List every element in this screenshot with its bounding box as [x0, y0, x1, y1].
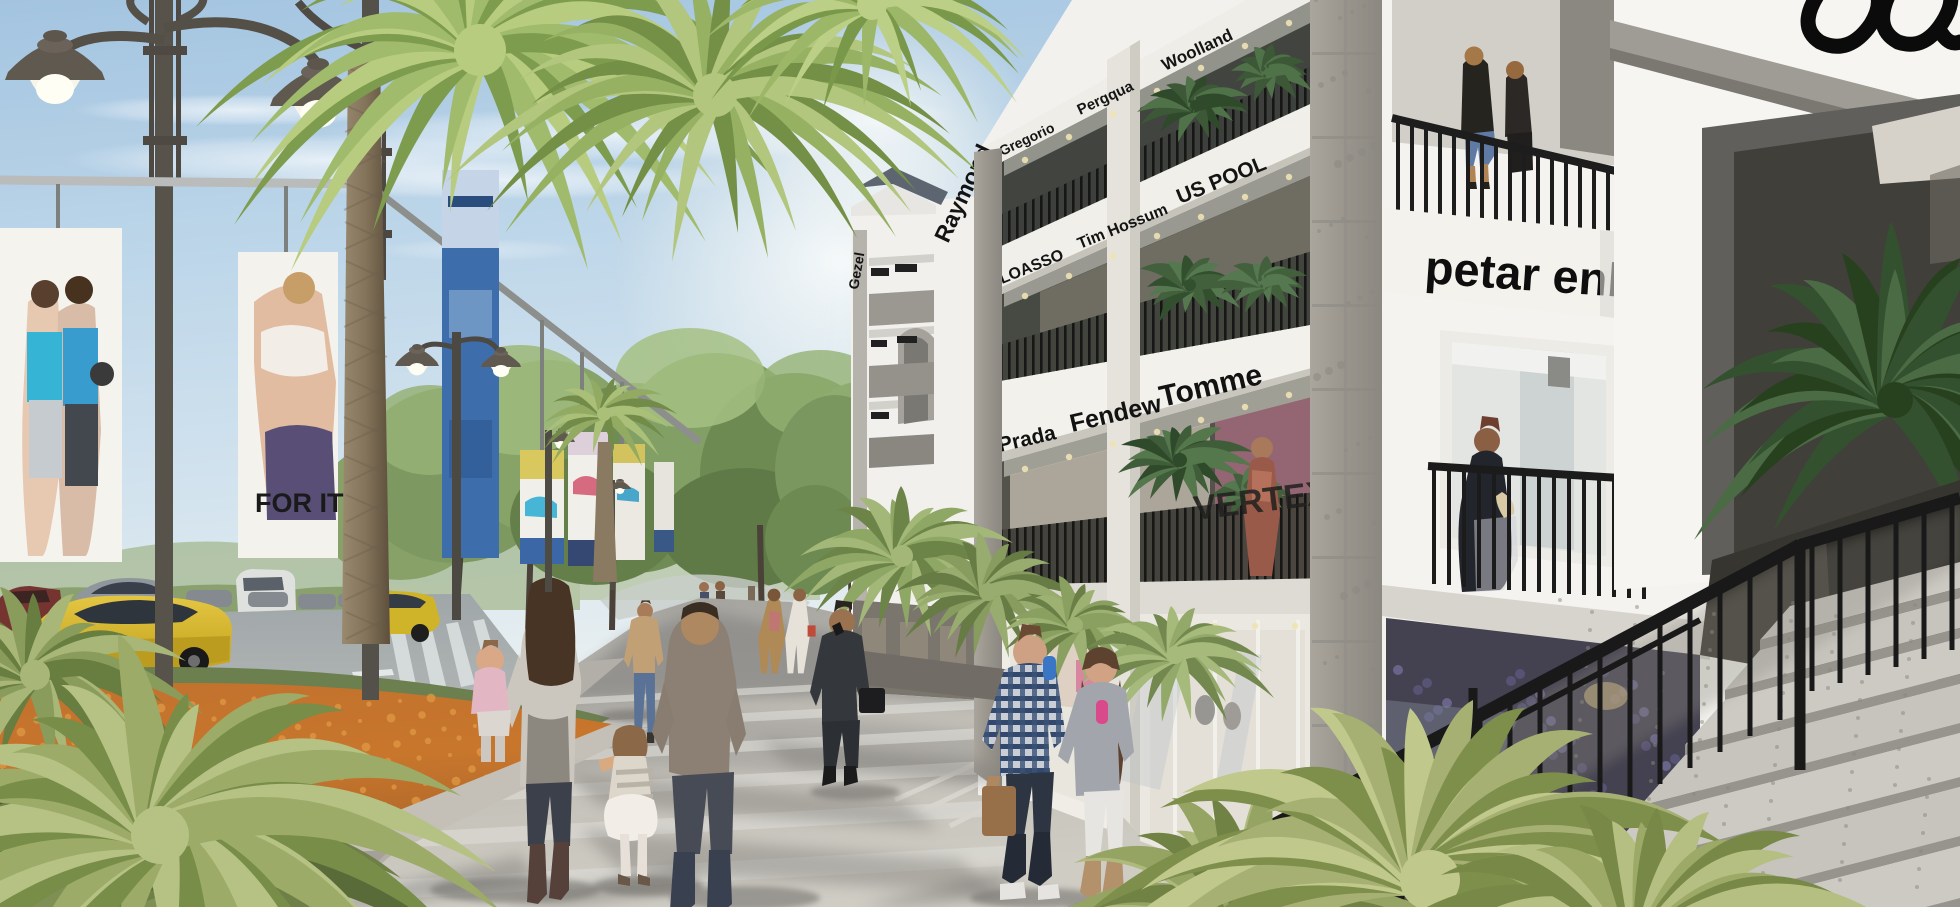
svg-text:FOR IT: FOR IT: [255, 488, 344, 518]
